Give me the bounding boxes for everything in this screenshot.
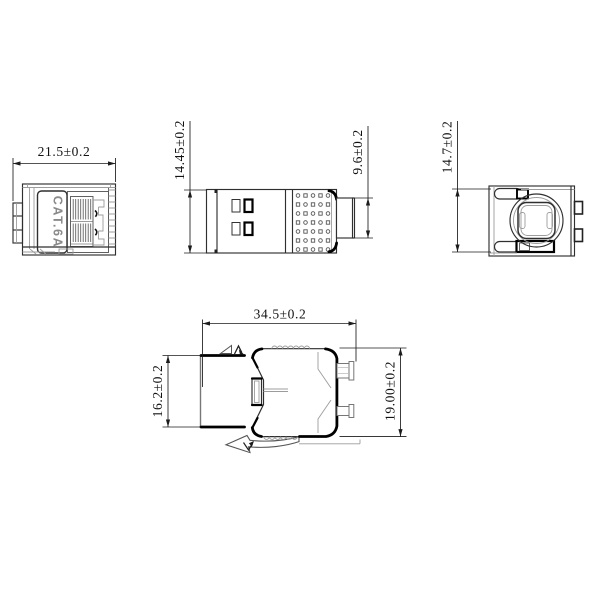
arrowhead — [188, 246, 192, 254]
category-label-panel: CAT.6A — [38, 191, 68, 253]
keystone-nose-steps — [93, 200, 104, 245]
dimension-lines — [184, 121, 207, 253]
side-mount-tab — [13, 203, 23, 243]
dim-front-width: 21.5±0.2 — [13, 144, 116, 201]
arrowhead — [366, 198, 370, 206]
shield-perforation — [294, 190, 332, 253]
rj45-contacts-upper — [73, 199, 91, 220]
category-label: CAT.6A — [51, 196, 65, 248]
arrowhead — [166, 356, 170, 364]
cable-tie-pins — [337, 362, 354, 418]
front-body-outline — [23, 184, 116, 255]
arrowhead — [398, 429, 402, 437]
main-body-outline — [252, 349, 337, 437]
arrowhead — [203, 321, 211, 325]
front-right-ribs — [109, 188, 116, 250]
side-windows — [232, 200, 253, 236]
contact-hooks — [95, 211, 97, 236]
dim-top-depth-text: 34.5±0.2 — [254, 307, 307, 322]
rj45-socket — [68, 192, 109, 253]
top-view — [201, 346, 361, 453]
dim-rear-height: 14.7±0.2 — [440, 121, 492, 252]
dimension-lines — [163, 356, 202, 428]
rear-block — [201, 356, 245, 428]
arrowhead — [455, 245, 459, 253]
top-latch-marks — [221, 346, 244, 355]
dim-plug-height: 9.6±0.2 — [350, 126, 373, 238]
drawing-canvas: CAT.6A 21.5±0.2 — [0, 0, 600, 600]
latch-slot-top — [517, 190, 528, 199]
latch-lever-arrow — [226, 436, 360, 453]
rear-tab — [575, 229, 583, 242]
dim-front-width-text: 21.5±0.2 — [38, 144, 91, 159]
rear-plug-boss — [337, 198, 355, 238]
dimension-lines — [13, 158, 116, 201]
dim-top-body-height: 16.2±0.2 — [150, 356, 201, 428]
dim-rear-height-text: 14.7±0.2 — [440, 121, 455, 174]
dim-top-body-height-text: 16.2±0.2 — [150, 365, 165, 418]
dim-side-height: 14.45±0.2 — [172, 120, 207, 253]
technical-drawing: CAT.6A 21.5±0.2 — [0, 0, 600, 600]
rear-view — [489, 186, 583, 256]
arrowhead — [398, 348, 402, 356]
arrowhead — [166, 420, 170, 428]
arrowhead — [455, 189, 459, 197]
dimension-lines — [452, 121, 491, 252]
main-body — [252, 346, 337, 439]
side-view — [207, 190, 355, 254]
rear-tab — [575, 202, 583, 215]
rj45-contacts-lower — [73, 224, 91, 243]
cable-entry-ring — [510, 194, 563, 247]
arrowhead — [349, 321, 357, 325]
dim-plug-height-text: 9.6±0.2 — [350, 129, 365, 174]
arrowhead — [188, 190, 192, 198]
wire-slot — [252, 379, 262, 406]
arrowhead — [366, 231, 370, 239]
dim-top-overall-height-text: 19.00±0.2 — [383, 361, 398, 421]
front-view: CAT.6A — [13, 184, 116, 255]
dim-side-height-text: 14.45±0.2 — [172, 120, 187, 180]
arrowhead — [108, 161, 116, 165]
arrowhead — [13, 161, 21, 165]
